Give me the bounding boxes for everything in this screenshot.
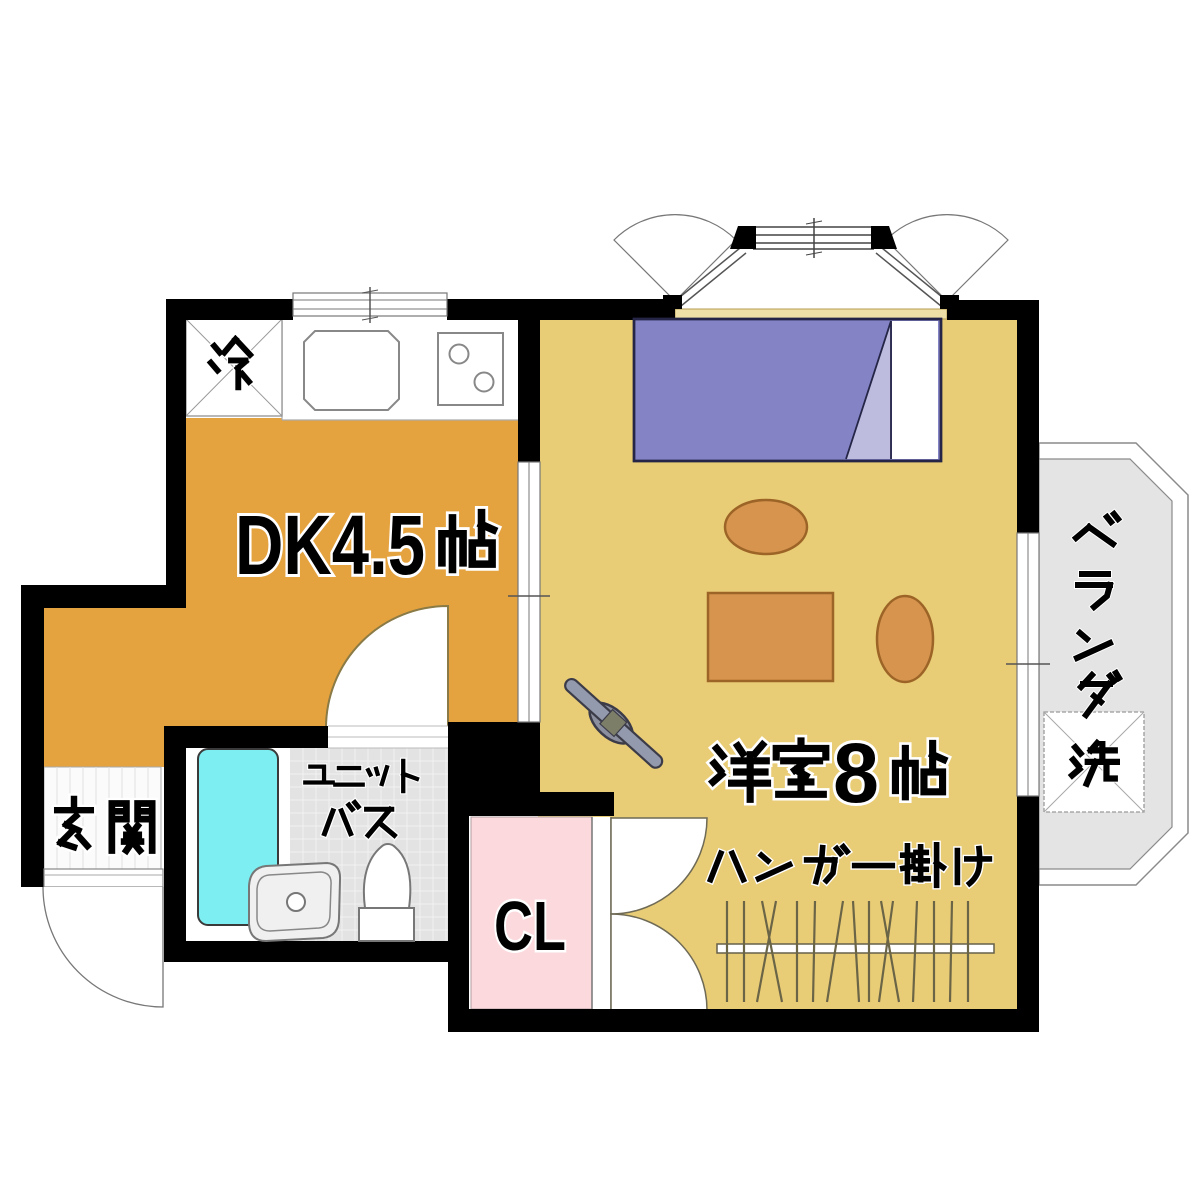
svg-text:8: 8 [833,726,879,820]
svg-text:CL: CL [494,887,566,965]
svg-text:DK4.5: DK4.5 [235,498,425,592]
